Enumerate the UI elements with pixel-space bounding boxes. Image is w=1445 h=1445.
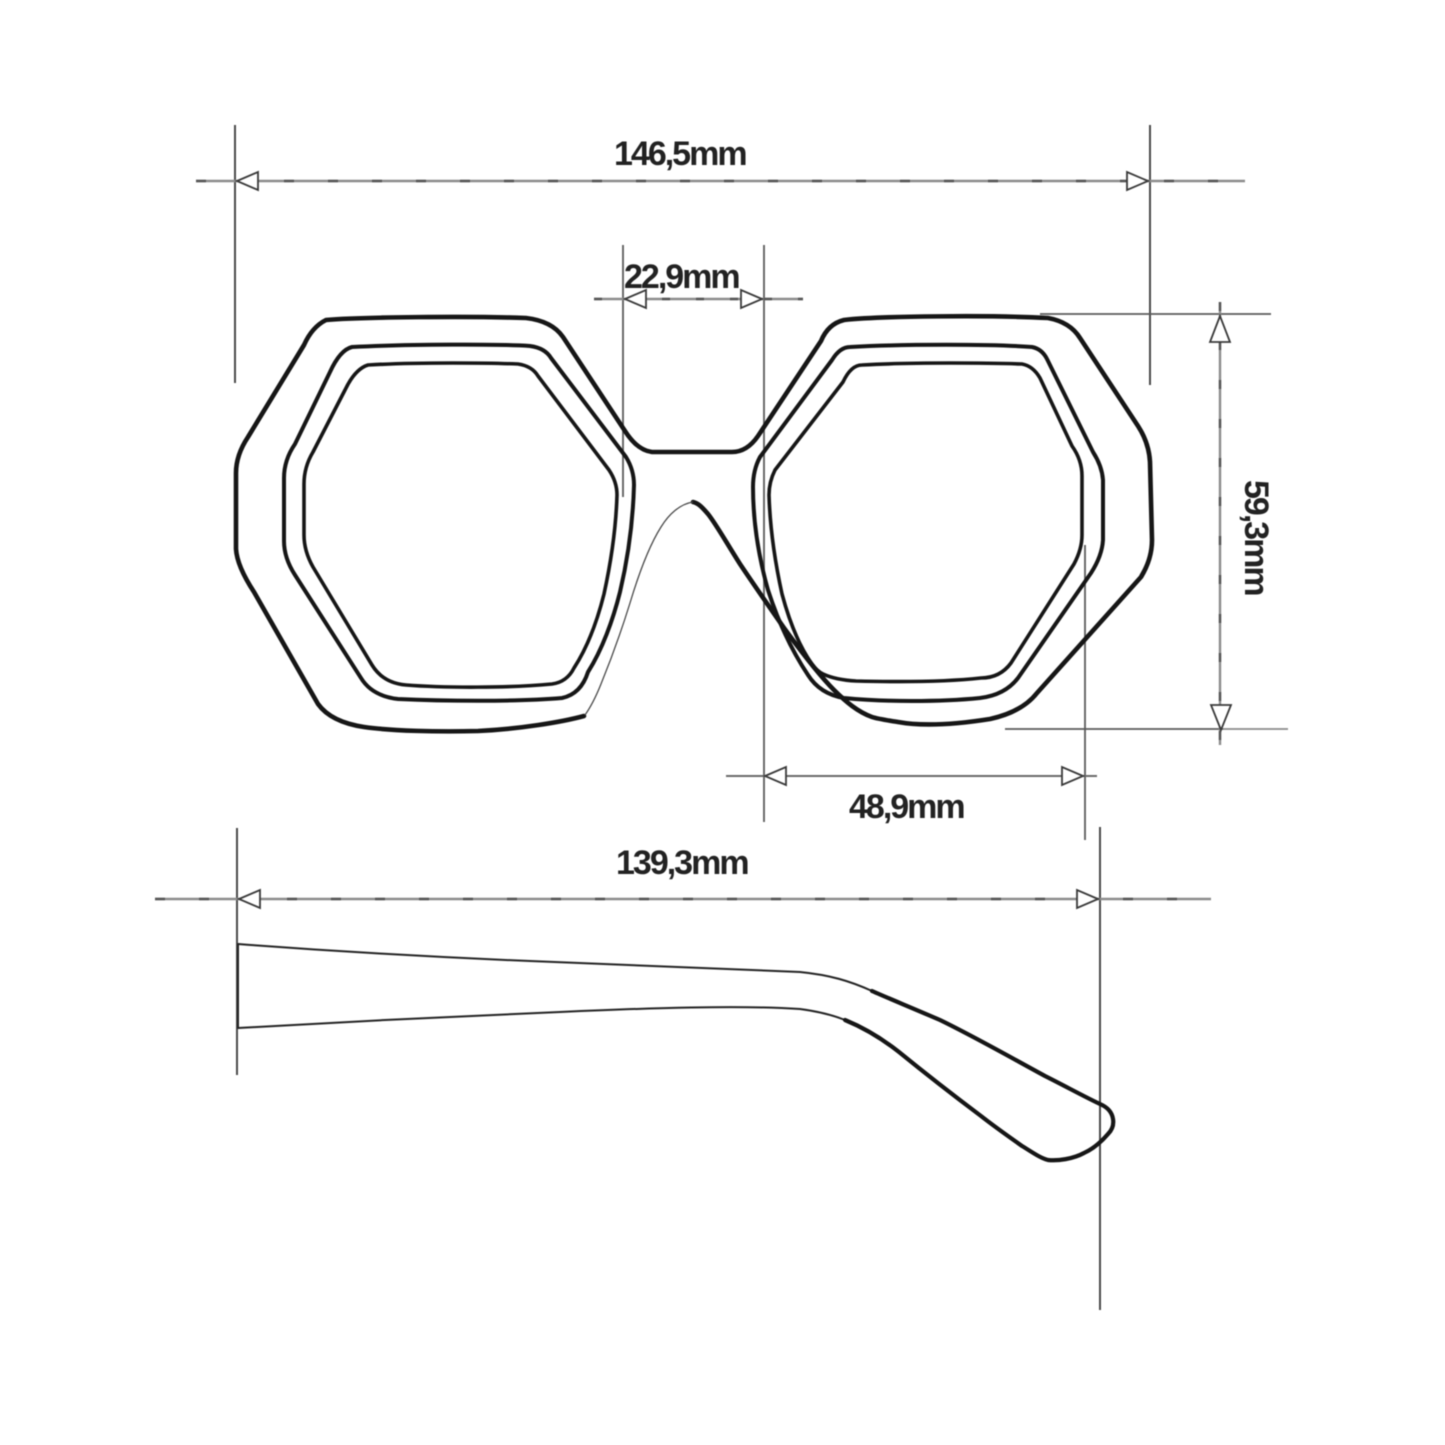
svg-text:48,9mm: 48,9mm [849, 788, 964, 826]
svg-text:139,3mm: 139,3mm [616, 844, 748, 882]
svg-text:59,3mm: 59,3mm [1237, 480, 1275, 595]
svg-text:22,9mm: 22,9mm [624, 258, 739, 296]
svg-text:146,5mm: 146,5mm [614, 135, 746, 173]
